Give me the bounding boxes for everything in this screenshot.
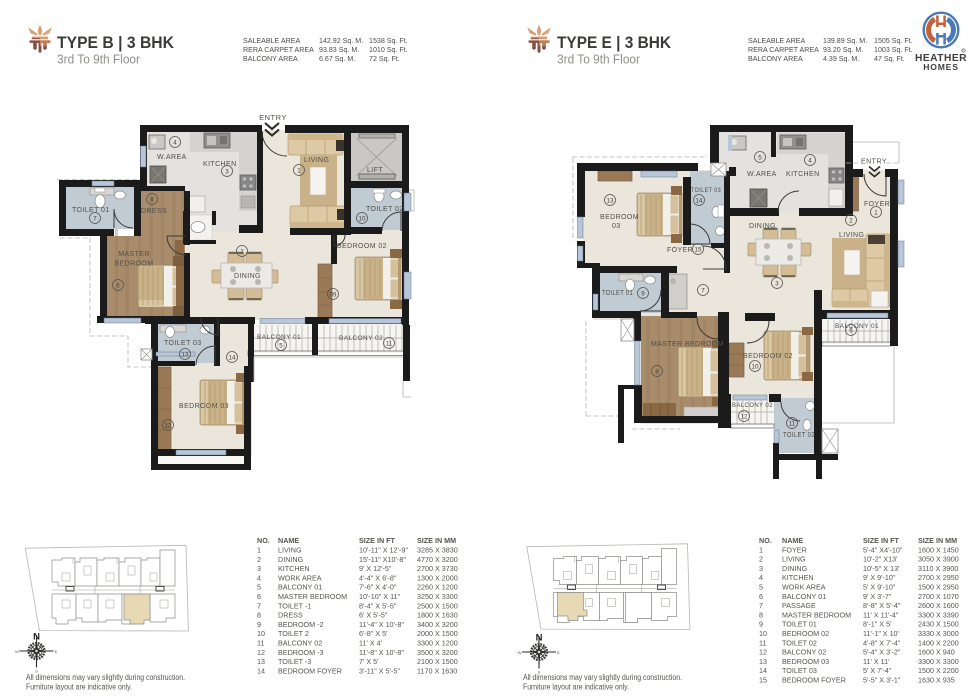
svg-text:MASTER BEDROOM: MASTER BEDROOM	[782, 610, 851, 619]
svg-text:10'-2" X13': 10'-2" X13'	[863, 555, 898, 564]
svg-text:11: 11	[386, 340, 393, 347]
svg-text:10: 10	[752, 363, 759, 370]
svg-text:15'-11" X10'-8": 15'-11" X10'-8"	[359, 555, 406, 564]
svg-text:BALCONY AREA: BALCONY AREA	[243, 55, 298, 63]
svg-text:W.AREA: W.AREA	[157, 154, 187, 161]
svg-text:3110 X 3900: 3110 X 3900	[918, 564, 958, 573]
svg-text:NAME: NAME	[782, 536, 803, 545]
svg-text:4: 4	[808, 157, 812, 164]
svg-text:10'-5" X 13': 10'-5" X 13'	[863, 564, 900, 573]
svg-text:3rd To 9th Floor: 3rd To 9th Floor	[557, 53, 640, 67]
svg-text:BEDROOM FOYER: BEDROOM FOYER	[782, 676, 846, 685]
svg-text:09: 09	[330, 291, 337, 298]
svg-text:11'-1" X 10': 11'-1" X 10'	[863, 629, 900, 638]
svg-text:5: 5	[257, 583, 261, 592]
svg-text:4770 X 3200: 4770 X 3200	[417, 555, 458, 564]
svg-text:11'-4" X 10'-8": 11'-4" X 10'-8"	[359, 620, 404, 629]
svg-text:7'-6" X 4'-0": 7'-6" X 4'-0"	[359, 583, 397, 592]
svg-text:PASSAGE: PASSAGE	[782, 601, 816, 610]
svg-text:5: 5	[759, 583, 763, 592]
svg-text:12: 12	[257, 648, 265, 657]
svg-text:BEDROOM -3: BEDROOM -3	[278, 648, 324, 657]
svg-text:10: 10	[359, 215, 366, 222]
svg-text:LIVING: LIVING	[304, 157, 329, 164]
svg-text:BEDROOM FOYER: BEDROOM FOYER	[278, 666, 342, 675]
svg-text:1800 X 1630: 1800 X 1630	[417, 611, 458, 620]
svg-text:LIVING: LIVING	[278, 546, 302, 555]
svg-text:1: 1	[297, 167, 301, 174]
svg-text:9: 9	[759, 620, 763, 629]
svg-text:11: 11	[257, 639, 264, 648]
svg-text:WORK AREA: WORK AREA	[278, 573, 322, 582]
svg-text:13: 13	[182, 351, 189, 358]
svg-text:11' X 4': 11' X 4'	[359, 639, 383, 648]
svg-text:11'-8" X 10'-8": 11'-8" X 10'-8"	[359, 648, 404, 657]
svg-text:1010 Sq. Ft.: 1010 Sq. Ft.	[369, 46, 408, 54]
svg-text:All dimensions may vary slight: All dimensions may vary slightly during …	[26, 673, 185, 682]
svg-text:SIZE IN FT: SIZE IN FT	[863, 536, 900, 545]
svg-text:BEDROOM: BEDROOM	[115, 261, 154, 268]
svg-text:ENTRY: ENTRY	[259, 113, 287, 122]
svg-text:5: 5	[279, 342, 283, 349]
svg-text:TYPE E | 3 BHK: TYPE E | 3 BHK	[557, 33, 672, 52]
svg-text:RERA CARPET AREA: RERA CARPET AREA	[243, 46, 314, 54]
svg-text:BALCONY 01: BALCONY 01	[278, 583, 322, 592]
svg-text:TOILET 2: TOILET 2	[278, 629, 309, 638]
svg-text:DINING: DINING	[749, 223, 776, 230]
svg-text:10'-10" X 11": 10'-10" X 11"	[359, 592, 401, 601]
svg-text:8'-4" X 5'-5": 8'-4" X 5'-5"	[359, 601, 397, 610]
svg-text:13: 13	[607, 197, 614, 204]
svg-text:MASTER BEDROOM: MASTER BEDROOM	[278, 592, 347, 601]
svg-text:9: 9	[257, 620, 261, 629]
svg-text:2: 2	[849, 217, 853, 224]
svg-text:10'-11" X 12'-9": 10'-11" X 12'-9"	[359, 546, 408, 555]
svg-text:1505 Sq. Ft.: 1505 Sq. Ft.	[874, 37, 913, 45]
svg-text:12: 12	[741, 413, 748, 420]
svg-text:3'-11" X 5'-5": 3'-11" X 5'-5"	[359, 666, 400, 675]
svg-text:LIVING: LIVING	[782, 555, 806, 564]
svg-text:5'-4" X 3'-2": 5'-4" X 3'-2"	[863, 648, 901, 657]
svg-text:TOILET 03: TOILET 03	[691, 187, 721, 194]
svg-text:2700 X 3730: 2700 X 3730	[417, 564, 458, 573]
svg-text:6: 6	[116, 282, 120, 289]
svg-text:8: 8	[759, 610, 763, 619]
svg-text:8: 8	[257, 611, 261, 620]
svg-text:3330 X 3000: 3330 X 3000	[918, 629, 959, 638]
svg-text:13: 13	[257, 657, 265, 666]
svg-text:W.AREA: W.AREA	[747, 171, 777, 178]
svg-text:1600 X 1450: 1600 X 1450	[918, 545, 959, 554]
svg-text:6: 6	[257, 592, 261, 601]
svg-text:DINING: DINING	[782, 564, 808, 573]
svg-text:BEDROOM 02: BEDROOM 02	[337, 243, 387, 250]
svg-text:1300 X 2000: 1300 X 2000	[417, 573, 458, 582]
svg-text:TOILET 01: TOILET 01	[782, 620, 817, 629]
svg-text:TOILET 02: TOILET 02	[783, 432, 815, 439]
svg-text:SALEABLE AREA: SALEABLE AREA	[243, 37, 300, 45]
svg-text:14: 14	[696, 197, 703, 204]
svg-text:11: 11	[789, 420, 796, 427]
svg-text:6.67 Sq. M.: 6.67 Sq. M.	[319, 55, 355, 63]
svg-text:TOILET 01: TOILET 01	[72, 207, 110, 214]
svg-text:12: 12	[165, 422, 172, 429]
svg-text:2430 X 1500: 2430 X 1500	[918, 620, 959, 629]
svg-text:5' X 9'-10": 5' X 9'-10"	[863, 583, 896, 592]
svg-text:2600 X 1600: 2600 X 1600	[918, 601, 959, 610]
svg-text:SIZE IN MM: SIZE IN MM	[417, 536, 456, 545]
svg-text:KITCHEN: KITCHEN	[786, 171, 820, 178]
svg-text:2500 X 1500: 2500 X 1500	[417, 601, 458, 610]
svg-text:7: 7	[257, 601, 261, 610]
svg-text:15: 15	[695, 246, 702, 253]
svg-text:9' X 12'-5": 9' X 12'-5"	[359, 564, 392, 573]
svg-text:1538 Sq. Ft.: 1538 Sq. Ft.	[369, 37, 408, 45]
svg-text:NO.: NO.	[759, 536, 772, 545]
svg-text:DINING: DINING	[234, 273, 261, 280]
svg-text:1500 X 2950: 1500 X 2950	[918, 583, 959, 592]
svg-text:3500 X 3200: 3500 X 3200	[417, 648, 458, 657]
svg-text:BEDROOM: BEDROOM	[600, 214, 639, 221]
svg-text:BALCONY AREA: BALCONY AREA	[748, 55, 803, 63]
svg-text:1: 1	[257, 546, 261, 555]
svg-text:3285 X 3830: 3285 X 3830	[417, 546, 458, 555]
svg-text:TOILET 01: TOILET 01	[602, 290, 633, 297]
svg-text:TOILET -1: TOILET -1	[278, 601, 311, 610]
svg-text:03: 03	[612, 223, 621, 230]
svg-text:14: 14	[257, 666, 265, 675]
svg-text:2000 X 1500: 2000 X 1500	[417, 629, 458, 638]
svg-text:DINING: DINING	[278, 555, 304, 564]
svg-text:3300 X 3300: 3300 X 3300	[918, 657, 959, 666]
svg-text:All dimensions may vary slight: All dimensions may vary slightly during …	[523, 673, 682, 682]
svg-text:3400 X 3200: 3400 X 3200	[417, 620, 458, 629]
svg-text:15: 15	[759, 676, 767, 685]
svg-text:11: 11	[759, 638, 766, 647]
svg-text:3050 X 3900: 3050 X 3900	[918, 555, 959, 564]
svg-text:3: 3	[225, 168, 229, 175]
svg-text:1003 Sq. Ft.: 1003 Sq. Ft.	[874, 46, 913, 54]
svg-text:11' X 11'-4": 11' X 11'-4"	[863, 610, 899, 619]
svg-text:TOILET 02: TOILET 02	[782, 638, 817, 647]
svg-text:NAME: NAME	[278, 536, 299, 545]
svg-text:4: 4	[759, 573, 763, 582]
svg-text:BEDROOM 03: BEDROOM 03	[782, 657, 829, 666]
svg-text:1400 X 2200: 1400 X 2200	[918, 638, 959, 647]
svg-text:1170 X 1630: 1170 X 1630	[417, 666, 457, 675]
svg-text:12: 12	[759, 648, 767, 657]
svg-text:KITCHEN: KITCHEN	[203, 161, 237, 168]
svg-text:TOILET 03: TOILET 03	[164, 340, 202, 347]
svg-text:ENTRY: ENTRY	[861, 159, 887, 166]
svg-text:2: 2	[759, 555, 763, 564]
svg-text:WORK AREA: WORK AREA	[782, 583, 826, 592]
svg-text:NO.: NO.	[257, 536, 270, 545]
svg-text:SALEABLE AREA: SALEABLE AREA	[748, 37, 805, 45]
svg-text:13: 13	[759, 657, 767, 666]
svg-text:10: 10	[257, 629, 265, 638]
svg-text:FOYER: FOYER	[667, 247, 693, 254]
svg-text:7: 7	[759, 601, 763, 610]
svg-text:FOYER: FOYER	[782, 545, 807, 554]
svg-text:3: 3	[775, 280, 779, 287]
svg-text:SIZE IN MM: SIZE IN MM	[918, 536, 957, 545]
svg-text:3rd To 9th Floor: 3rd To 9th Floor	[57, 53, 140, 67]
svg-text:MASTER: MASTER	[118, 251, 150, 258]
svg-text:72 Sq. Ft.: 72 Sq. Ft.	[369, 55, 400, 63]
svg-text:TOILET 03: TOILET 03	[782, 666, 817, 675]
svg-text:2100 X 1500: 2100 X 1500	[417, 657, 458, 666]
svg-text:1600 X 940: 1600 X 940	[918, 648, 955, 657]
svg-text:8'-1" X 5': 8'-1" X 5'	[863, 620, 892, 629]
svg-text:Furniture layout are indicativ: Furniture layout are indicative only.	[523, 683, 629, 692]
svg-text:BALCONY 02: BALCONY 02	[782, 648, 826, 657]
svg-text:142.92 Sq. M.: 142.92 Sq. M.	[319, 37, 363, 45]
svg-text:BEDROOM -2: BEDROOM -2	[278, 620, 324, 629]
svg-text:14: 14	[759, 666, 767, 675]
svg-text:7: 7	[701, 287, 705, 294]
svg-text:RERA CARPET AREA: RERA CARPET AREA	[748, 46, 819, 54]
svg-text:LIFT: LIFT	[367, 167, 383, 174]
svg-text:5: 5	[758, 154, 762, 161]
svg-text:3: 3	[759, 564, 763, 573]
svg-text:93.83 Sq. M.: 93.83 Sq. M.	[319, 46, 359, 54]
svg-text:8'-8" X 5'-4": 8'-8" X 5'-4"	[863, 601, 901, 610]
svg-text:4: 4	[173, 139, 177, 146]
svg-text:SIZE IN FT: SIZE IN FT	[359, 536, 396, 545]
svg-text:139.89 Sq. M.: 139.89 Sq. M.	[823, 37, 867, 45]
svg-text:DRESS: DRESS	[278, 611, 303, 620]
svg-text:4'-4" X 6'-8": 4'-4" X 6'-8"	[359, 573, 397, 582]
svg-text:1630 X 935: 1630 X 935	[918, 676, 955, 685]
svg-text:5' X 7'-4": 5' X 7'-4"	[863, 666, 892, 675]
svg-text:4.39 Sq. M.: 4.39 Sq. M.	[823, 55, 859, 63]
svg-text:3250 X 3300: 3250 X 3300	[417, 592, 458, 601]
svg-text:TOILET 02: TOILET 02	[366, 206, 404, 213]
svg-text:HOMES: HOMES	[923, 62, 959, 72]
svg-text:4: 4	[257, 573, 261, 582]
svg-text:BALCONY 02: BALCONY 02	[732, 403, 773, 409]
svg-text:5'-5" X 3'-1": 5'-5" X 3'-1"	[863, 676, 901, 685]
svg-text:6: 6	[849, 327, 853, 334]
svg-text:8: 8	[655, 368, 659, 375]
svg-text:6'-8" X 5': 6'-8" X 5'	[359, 629, 388, 638]
svg-text:DRESS: DRESS	[141, 208, 167, 215]
svg-text:9: 9	[641, 290, 645, 297]
svg-text:1500 X 2200: 1500 X 2200	[918, 666, 959, 675]
svg-text:6' X 5'-5": 6' X 5'-5"	[359, 611, 388, 620]
svg-text:11' X 11': 11' X 11'	[863, 657, 890, 666]
svg-text:3300 X 1200: 3300 X 1200	[417, 639, 458, 648]
svg-text:5'-4" X4'-10": 5'-4" X4'-10"	[863, 545, 903, 554]
svg-text:KITCHEN: KITCHEN	[782, 573, 814, 582]
svg-text:BEDROOM 03: BEDROOM 03	[179, 403, 229, 410]
svg-text:8: 8	[150, 196, 154, 203]
svg-text:3: 3	[257, 564, 261, 573]
svg-text:3300 X 3390: 3300 X 3390	[918, 610, 959, 619]
svg-text:2: 2	[240, 248, 244, 255]
svg-text:4'-8" X 7'-4": 4'-8" X 7'-4"	[863, 638, 901, 647]
svg-text:BALCONY 01: BALCONY 01	[835, 323, 879, 330]
svg-text:2700 X 1070: 2700 X 1070	[918, 592, 959, 601]
svg-text:14: 14	[229, 354, 236, 361]
svg-text:2: 2	[257, 555, 261, 564]
svg-text:9' X 3'-7": 9' X 3'-7"	[863, 592, 892, 601]
svg-text:1: 1	[759, 545, 763, 554]
svg-text:BALCONY 02: BALCONY 02	[339, 335, 383, 342]
svg-text:10: 10	[759, 629, 767, 638]
svg-text:7: 7	[93, 215, 97, 222]
svg-text:Furniture layout are indicativ: Furniture layout are indicative only.	[26, 683, 132, 692]
svg-text:TYPE B | 3 BHK: TYPE B | 3 BHK	[57, 33, 175, 52]
svg-text:1: 1	[874, 209, 878, 216]
svg-text:2700 X 2950: 2700 X 2950	[918, 573, 959, 582]
svg-text:BALCONY 01: BALCONY 01	[782, 592, 826, 601]
svg-text:BALCONY 02: BALCONY 02	[278, 639, 322, 648]
svg-text:TOILET -3: TOILET -3	[278, 657, 311, 666]
svg-text:9' X 9'-10": 9' X 9'-10"	[863, 573, 896, 582]
svg-text:6: 6	[759, 592, 763, 601]
svg-text:2260 X 1200: 2260 X 1200	[417, 583, 458, 592]
svg-text:7' X 5': 7' X 5'	[359, 657, 379, 666]
svg-text:BEDROOM 02: BEDROOM 02	[782, 629, 829, 638]
svg-text:93.20 Sq. M.: 93.20 Sq. M.	[823, 46, 863, 54]
svg-text:MASTER BEDROOM: MASTER BEDROOM	[651, 341, 724, 348]
svg-text:KITCHEN: KITCHEN	[278, 564, 310, 573]
svg-text:47 Sq. Ft.: 47 Sq. Ft.	[874, 55, 905, 63]
svg-text:LIVING: LIVING	[839, 232, 864, 239]
